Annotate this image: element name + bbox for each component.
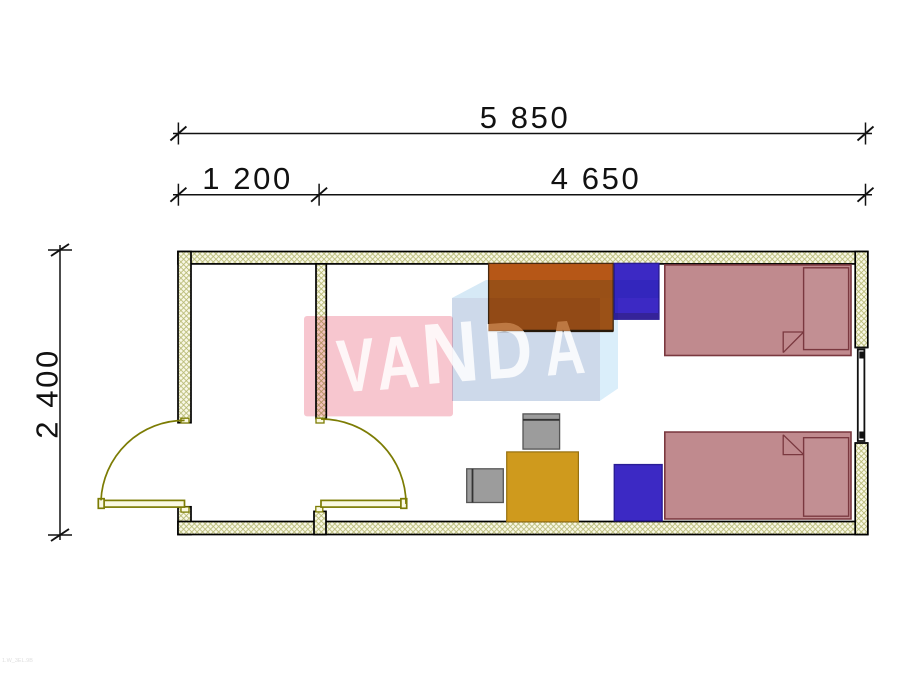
svg-text:V: V <box>334 323 378 409</box>
svg-text:4 650: 4 650 <box>551 161 642 196</box>
svg-text:A: A <box>373 320 422 407</box>
svg-text:1.W_3EL.9B: 1.W_3EL.9B <box>2 658 33 664</box>
svg-text:N: N <box>418 304 482 403</box>
svg-text:2 400: 2 400 <box>30 348 65 439</box>
svg-text:1 200: 1 200 <box>202 161 293 196</box>
svg-text:5 850: 5 850 <box>480 100 571 135</box>
